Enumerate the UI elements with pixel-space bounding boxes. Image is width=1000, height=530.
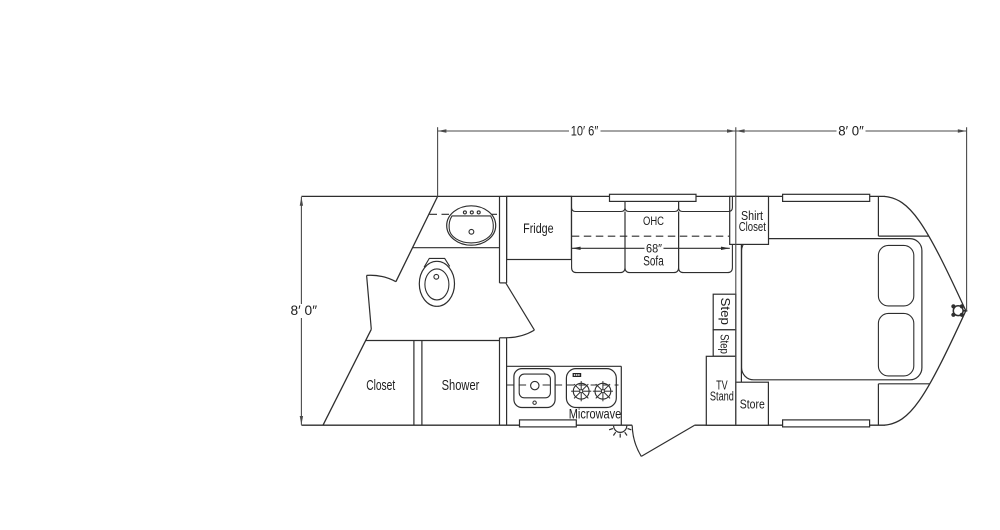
svg-text:Stand: Stand xyxy=(710,389,734,404)
svg-text:Fridge: Fridge xyxy=(523,221,554,236)
svg-text:10′ 6″: 10′ 6″ xyxy=(571,123,599,138)
svg-text:8′ 0″: 8′ 0″ xyxy=(838,123,864,138)
svg-text:Store: Store xyxy=(740,396,765,411)
svg-text:8′ 0″: 8′ 0″ xyxy=(291,303,318,318)
svg-text:Closet: Closet xyxy=(366,377,396,394)
svg-text:Step: Step xyxy=(718,334,732,354)
svg-text:Microwave: Microwave xyxy=(569,406,622,422)
svg-text:OHC: OHC xyxy=(643,216,664,228)
svg-text:Sofa: Sofa xyxy=(643,253,664,268)
svg-text:Step: Step xyxy=(718,297,733,325)
svg-text:Shower: Shower xyxy=(442,377,480,394)
svg-text:Closet: Closet xyxy=(739,220,767,234)
